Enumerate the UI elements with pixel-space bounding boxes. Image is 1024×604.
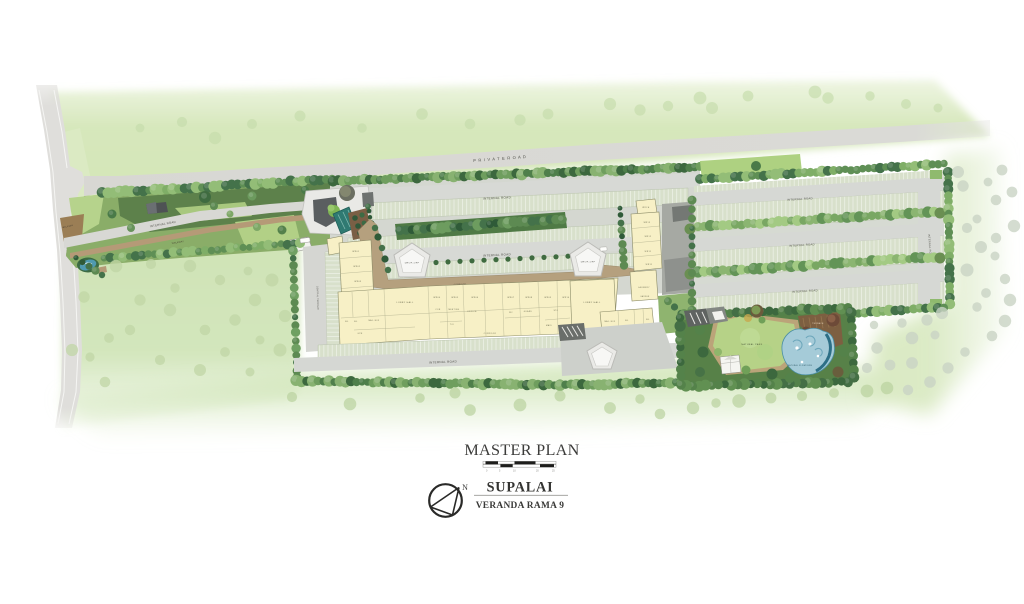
svg-text:CON: CON: [435, 309, 440, 311]
svg-text:N: N: [462, 483, 468, 492]
svg-text:WR08: WR08: [525, 297, 533, 299]
svg-text:MEETING: MEETING: [449, 309, 460, 311]
svg-text:OFFICE: OFFICE: [467, 311, 477, 313]
svg-text:WR06: WR06: [471, 297, 479, 299]
svg-text:MAIL BOX: MAIL BOX: [368, 319, 380, 322]
svg-text:DROP-OFF: DROP-OFF: [581, 262, 596, 264]
svg-text:WR04: WR04: [433, 297, 441, 299]
svg-text:LAUNDRY: LAUNDRY: [638, 286, 650, 289]
svg-text:SUPALAI: SUPALAI: [487, 480, 554, 496]
svg-text:GB.: GB.: [646, 319, 650, 321]
svg-text:WR09: WR09: [544, 297, 552, 299]
svg-text:MAIL BOX: MAIL BOX: [604, 320, 616, 323]
svg-text:WR07: WR07: [507, 297, 515, 299]
svg-text:WR13: WR13: [644, 222, 651, 224]
svg-text:WR10: WR10: [562, 297, 570, 299]
svg-text:MASTER PLAN: MASTER PLAN: [464, 441, 579, 459]
svg-text:NATURAL PARK: NATURAL PARK: [741, 343, 762, 346]
svg-text:NATURAL FLOWFORM: NATURAL FLOWFORM: [788, 364, 813, 367]
svg-text:WR03: WR03: [354, 281, 362, 283]
svg-text:LOBBY HALL: LOBBY HALL: [583, 301, 601, 304]
svg-text:STO: STO: [554, 310, 559, 312]
svg-text:LOBBY HALL: LOBBY HALL: [396, 301, 414, 304]
svg-text:WRCH: WRCH: [642, 207, 649, 209]
svg-text:VERANDA RAMA 9: VERANDA RAMA 9: [476, 501, 565, 511]
svg-text:TERRACE: TERRACE: [812, 322, 824, 325]
svg-text:WR11: WR11: [645, 251, 652, 253]
svg-text:GB.: GB.: [345, 321, 349, 323]
svg-text:WC: WC: [509, 312, 513, 314]
svg-text:WR01: WR01: [352, 251, 360, 253]
svg-text:WR05: WR05: [451, 297, 459, 299]
svg-text:DROP-OFF: DROP-OFF: [405, 263, 420, 265]
svg-text:WR11: WR11: [646, 264, 653, 266]
svg-text:GYM: GYM: [357, 333, 362, 335]
svg-text:TOI: TOI: [450, 324, 454, 326]
svg-text:GUARD: GUARD: [524, 310, 533, 313]
svg-text:CORRIDOR: CORRIDOR: [484, 333, 497, 335]
svg-text:GB.: GB.: [354, 321, 358, 323]
svg-text:WR02: WR02: [353, 266, 361, 268]
svg-text:GB.: GB.: [625, 320, 629, 322]
svg-text:WR12: WR12: [645, 236, 652, 238]
svg-text:MAID: MAID: [546, 324, 552, 327]
